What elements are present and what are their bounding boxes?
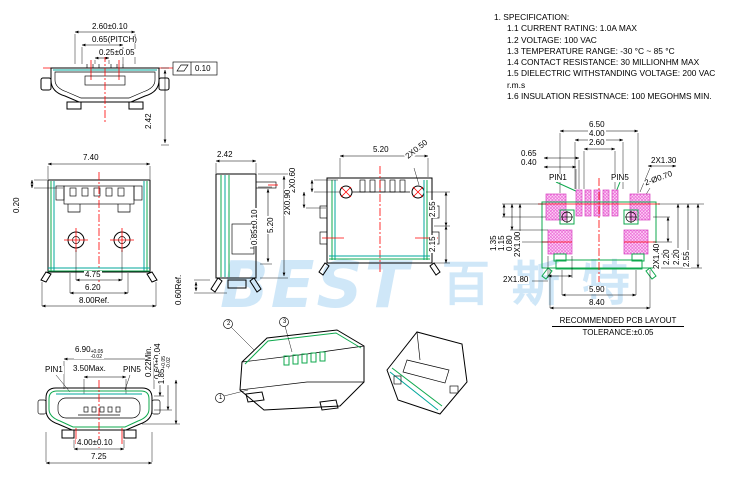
dim-label-pcb-right-b: 2.20	[663, 248, 671, 266]
pin5-label: PIN5	[610, 174, 630, 182]
top-view: 7.40 0.20 4.75 6.20 8.00Ref.	[18, 152, 183, 314]
dim-label-pcb-inner-span: 4.00	[588, 130, 606, 138]
tolerance-stack: +0.05-0.02	[162, 356, 171, 369]
tolerance-lower: -0.02	[91, 355, 104, 360]
dim-label-side-tab: 0.85±0.10	[251, 208, 259, 246]
dim-label-pcb-right-c: 2.20	[673, 248, 681, 266]
callout-balloon: 1	[218, 395, 223, 401]
engineering-drawing-page: BEST 百斯特 1. SPECIFICATION: 1.1 CURRENT R…	[0, 0, 729, 483]
dim-label-side-height: 5.20	[267, 216, 275, 234]
dim-label-side-width: 2.42	[216, 151, 234, 159]
dim-label-mating-right-c: 1.85+0.05-0.02	[158, 355, 171, 385]
dim-label-top-posts: 4.75	[84, 271, 102, 279]
dim-label-mating-right-a: 0.22Min.	[145, 345, 153, 378]
bottom-view: 2X0.60 5.20 2X0.50 2X0.90 2.55 2.15	[292, 138, 462, 296]
spec-item: 1.4 CONTACT RESISTANCE: 30 MILLIONHM MAX	[507, 57, 729, 68]
dim-label-pcb-span: 6.50	[588, 121, 606, 129]
pin1-label: PIN1	[44, 366, 64, 374]
specification-list: 1. SPECIFICATION: 1.1 CURRENT RATING: 1.…	[494, 12, 729, 102]
pcb-layout-view: 6.50 4.00 2.60 0.65 0.40 2X1.30 2-Ø0.70 …	[498, 120, 729, 350]
spec-item: 1.2 VOLTAGE: 100 VAC	[507, 35, 729, 46]
mating-face-drawing	[28, 332, 203, 480]
dim-label-mating-overall: 7.25	[90, 453, 108, 461]
spec-title: 1. SPECIFICATION:	[494, 12, 729, 23]
callout-balloon: 2	[226, 321, 231, 327]
dim-label-bottom-upper: 2.55	[429, 200, 437, 218]
side-view-drawing	[180, 146, 300, 314]
dim-label-side-ref: 0.60Ref.	[175, 274, 183, 306]
pin1-label: PIN1	[548, 174, 568, 182]
dim-label-mating-feet: 4.00±0.10	[76, 439, 114, 447]
pcb-layout-tolerance: TOLERANCE:±0.05	[552, 329, 684, 337]
dim-label-top-offset: 0.20	[13, 196, 21, 214]
tolerance-lower: -0.02	[166, 356, 171, 369]
dim-mating-width-value: 6.90	[75, 345, 91, 354]
flatness-value: 0.10	[194, 65, 212, 73]
dim-label-pcb-lower-pad: 2X1.80	[502, 276, 529, 284]
tolerance-stack: +0.05-0.02	[91, 350, 104, 359]
dim-label-front-width: 2.60±0.10	[91, 23, 129, 31]
side-view: 2.42 0.85±0.10 5.20 0.60Ref.	[180, 146, 300, 314]
dim-label-pcb-shell-pad: 2X1.30	[650, 157, 677, 165]
isometric-drawing	[212, 310, 477, 482]
mating-face-view: 6.90+0.05-0.02 PIN1 3.50Max. PIN5 0.22Mi…	[28, 332, 203, 480]
spec-item: 1.6 INSULATION RESISTNACE: 100 MEGOHMS M…	[507, 91, 729, 102]
pin5-label: PIN5	[122, 366, 142, 374]
dim-label-bottom-width: 5.20	[372, 146, 390, 154]
dim-label-top-body: 6.20	[84, 284, 102, 292]
dim-label-bottom-side: 2X0.90	[284, 189, 292, 216]
dim-label-pcb-pad-span: 2.60	[588, 139, 606, 147]
dim-label-pcb-pitch: 0.65	[520, 150, 538, 158]
dim-label-mating-max: 3.50Max.	[72, 365, 107, 373]
dim-label-pcb-pad-width: 0.40	[520, 159, 538, 167]
dim-label-pcb-right-a: 2X1.40	[653, 243, 661, 270]
dim-label-pcb-left-d: 2X1.00	[514, 231, 522, 258]
dim-label-top-width: 7.40	[82, 154, 100, 162]
isometric-views: 2 3 1	[212, 310, 477, 482]
spec-item: 1.5 DIELECTRIC WITHSTANDING VOLTAGE: 200…	[507, 68, 729, 91]
dim-label-pcb-feet: 5.90	[588, 286, 606, 294]
dim-label-top-ref: 8.00Ref.	[78, 297, 110, 305]
front-view: 2.60±0.10 0.65(PITCH) 0.25±0.05 0.10 2.4…	[35, 18, 235, 148]
spec-item: 1.1 CURRENT RATING: 1.0A MAX	[507, 23, 729, 34]
dim-label-mating-width: 6.90+0.05-0.02	[74, 346, 104, 359]
spec-item: 1.3 TEMPERATURE RANGE: -30 °C ~ 85 °C	[507, 46, 729, 57]
dim-label-pcb-overall: 8.40	[588, 299, 606, 307]
callout-balloon: 3	[282, 319, 287, 325]
dim-label-front-height: 2.42	[145, 112, 153, 130]
dim-label-pcb-right-d: 2.55	[683, 250, 691, 268]
dim-label-front-pitch: 0.65(PITCH)	[91, 36, 138, 44]
pcb-layout-title: RECOMMENDED PCB LAYOUT	[552, 317, 684, 327]
dim-label-bottom-lower: 2.15	[429, 235, 437, 253]
dim-label-front-contact: 0.25±0.05	[98, 49, 136, 57]
dim-mating-right-c-value: 1.85	[157, 369, 166, 385]
